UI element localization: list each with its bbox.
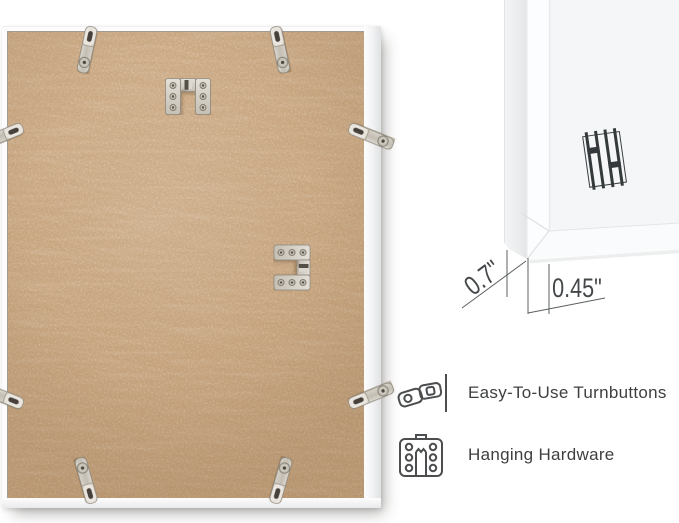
frame-right-edge bbox=[364, 26, 381, 508]
frame-bottom-edge bbox=[2, 498, 381, 508]
feature-label-hanging-hardware: Hanging Hardware bbox=[468, 445, 615, 465]
product-image: 0.7" 0.45" Easy-To-Use Turnbuttons bbox=[0, 0, 679, 523]
frame-corner-detail: 0.7" 0.45" bbox=[430, 0, 679, 332]
feature-turnbuttons: Easy-To-Use Turnbuttons bbox=[396, 370, 672, 416]
turnbutton-icon bbox=[396, 370, 452, 416]
frame-corner-front-trim bbox=[527, 0, 549, 259]
hanging-hardware-icon bbox=[396, 431, 452, 479]
frame-corner-side bbox=[504, 0, 527, 259]
feature-hanging-hardware: Hanging Hardware bbox=[396, 431, 672, 479]
depth-dimension-label: 0.7" bbox=[459, 255, 507, 301]
face-width-dimension-label: 0.45" bbox=[552, 274, 602, 304]
hanging-hardware-middle bbox=[274, 245, 311, 291]
hanging-hardware-top bbox=[165, 78, 211, 115]
feature-list: Easy-To-Use Turnbuttons Hanging Hardware bbox=[396, 370, 672, 494]
frame-corner-face bbox=[549, 0, 679, 231]
feature-label-turnbuttons: Easy-To-Use Turnbuttons bbox=[468, 383, 667, 403]
